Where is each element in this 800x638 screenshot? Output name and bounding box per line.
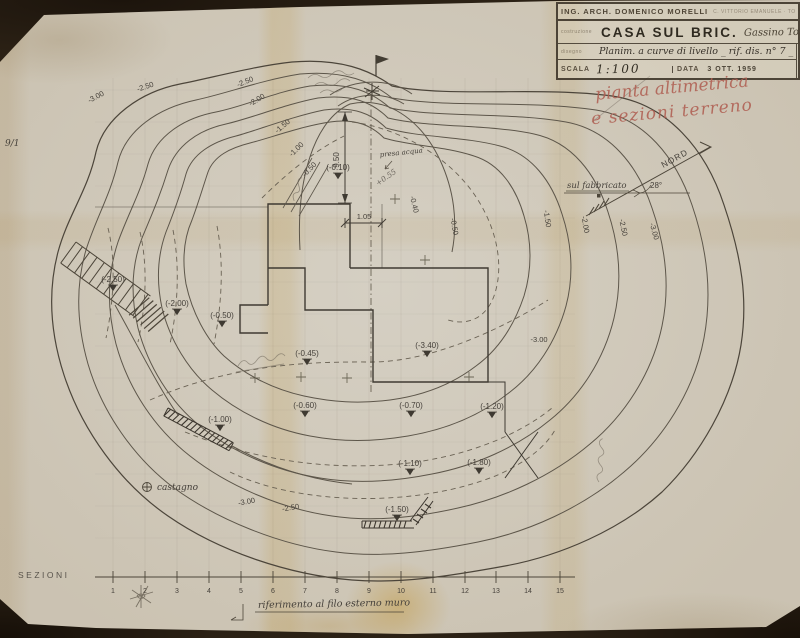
project-location: Gassino Torinese _ bbox=[744, 26, 800, 39]
svg-text:9: 9 bbox=[367, 588, 371, 595]
svg-text:12: 12 bbox=[461, 588, 469, 595]
svg-text:5: 5 bbox=[239, 588, 243, 595]
title-block-project-row: costruzione CASA SUL BRIC. Gassino Torin… bbox=[558, 21, 798, 44]
scale-value: 1:100 bbox=[596, 62, 641, 77]
svg-text:1: 1 bbox=[111, 588, 115, 595]
svg-text:(-1.20): (-1.20) bbox=[480, 402, 504, 411]
dim-horizontal-label: 1.05 bbox=[357, 212, 372, 221]
svg-text:13: 13 bbox=[492, 588, 500, 595]
svg-text:(-1.80): (-1.80) bbox=[467, 458, 491, 467]
svg-text:15: 15 bbox=[556, 588, 564, 595]
svg-text:-0.40: -0.40 bbox=[408, 195, 421, 214]
date-label: DATA bbox=[677, 66, 699, 73]
svg-text:(-2.50): (-2.50) bbox=[101, 275, 125, 284]
svg-text:6: 6 bbox=[271, 588, 275, 595]
project-name: CASA SUL BRIC. bbox=[601, 25, 738, 40]
svg-text:-2.50: -2.50 bbox=[281, 502, 299, 514]
svg-text:11: 11 bbox=[429, 588, 436, 595]
contour-labels: -3.00 -2.50 -2.50 -2.00 -1.50 -1.00 -0.5… bbox=[86, 74, 661, 513]
svg-text:-1.00: -1.00 bbox=[287, 140, 306, 158]
building-ref-note: sul fabbricato bbox=[567, 181, 627, 191]
svg-text:(-0.50): (-0.50) bbox=[210, 311, 234, 320]
drawing-field-label: disegno bbox=[561, 49, 595, 55]
svg-text:-3.00: -3.00 bbox=[86, 89, 105, 105]
svg-text:3: 3 bbox=[175, 588, 179, 595]
svg-text:(-0.70): (-0.70) bbox=[399, 401, 423, 410]
contour-lines bbox=[52, 61, 744, 581]
svg-text:-2.50: -2.50 bbox=[617, 218, 629, 237]
slope-note: +0.55 bbox=[374, 167, 398, 188]
svg-text:-3.00: -3.00 bbox=[530, 335, 547, 344]
pencil-scribble-right bbox=[590, 438, 610, 482]
scale-label: SCALA bbox=[561, 66, 590, 73]
scale-bar-numbers: 12 34 56 78 910 1112 1314 15 bbox=[111, 588, 564, 595]
sheet-number-cell: N° 6 bbox=[796, 44, 800, 78]
sections-label: SEZIONI bbox=[18, 570, 70, 580]
architect-details: C. VITTORIO EMANUELE · TORINO · TEL. bbox=[713, 9, 795, 15]
pencil-scribble-mid bbox=[236, 354, 285, 372]
svg-text:10: 10 bbox=[397, 588, 405, 595]
svg-text:(-1.10): (-1.10) bbox=[398, 459, 422, 468]
title-block-drawing-row: disegno Planim. a curve di livello _ rif… bbox=[558, 44, 796, 60]
svg-text:-0.50: -0.50 bbox=[449, 217, 461, 235]
title-block: ING. ARCH. DOMENICO MORELLI C. VITTORIO … bbox=[556, 2, 800, 80]
project-field-label: costruzione bbox=[561, 29, 595, 35]
svg-text:14: 14 bbox=[524, 588, 532, 595]
svg-text:8: 8 bbox=[335, 588, 339, 595]
spot-elevations: (-2.50) (-2.00) (-0.50) (-0.45) (-3.40) … bbox=[101, 163, 504, 521]
svg-text:-2.00: -2.00 bbox=[580, 215, 592, 233]
tree-icon bbox=[143, 483, 152, 492]
svg-text:(-3.40): (-3.40) bbox=[415, 341, 439, 350]
north-angle-label: 28° bbox=[650, 181, 662, 190]
tree-label: castagno bbox=[157, 483, 199, 493]
svg-text:-2.00: -2.00 bbox=[247, 92, 266, 108]
svg-text:(-0.45): (-0.45) bbox=[295, 349, 319, 358]
scanned-drawing-photo: NORD 28° 9.50 1.05 +0.55 bbox=[0, 0, 800, 638]
svg-text:4: 4 bbox=[207, 588, 211, 595]
svg-text:(-0.10): (-0.10) bbox=[326, 163, 350, 172]
drawing-title: Planim. a curve di livello _ rif. dis. n… bbox=[599, 46, 793, 57]
architect-name: ING. ARCH. DOMENICO MORELLI bbox=[561, 7, 708, 16]
svg-text:(-1.00): (-1.00) bbox=[208, 415, 232, 424]
title-block-architect-row: ING. ARCH. DOMENICO MORELLI C. VITTORIO … bbox=[558, 4, 798, 21]
site-boundary bbox=[52, 61, 744, 581]
building-ref-marker bbox=[597, 194, 601, 198]
wall-reference-note: riferimento al filo esterno muro bbox=[258, 597, 411, 611]
margin-note: 9/1 bbox=[5, 139, 19, 149]
svg-text:(-1.50): (-1.50) bbox=[385, 505, 409, 514]
north-arrow bbox=[564, 142, 711, 216]
compass-doodle bbox=[130, 585, 153, 608]
svg-text:7: 7 bbox=[303, 588, 307, 595]
scale-bar bbox=[95, 571, 575, 583]
svg-text:-3.00: -3.00 bbox=[648, 222, 661, 241]
svg-text:-1.50: -1.50 bbox=[542, 210, 553, 228]
svg-text:(-0.60): (-0.60) bbox=[293, 401, 317, 410]
svg-text:(-2.00): (-2.00) bbox=[165, 299, 189, 308]
